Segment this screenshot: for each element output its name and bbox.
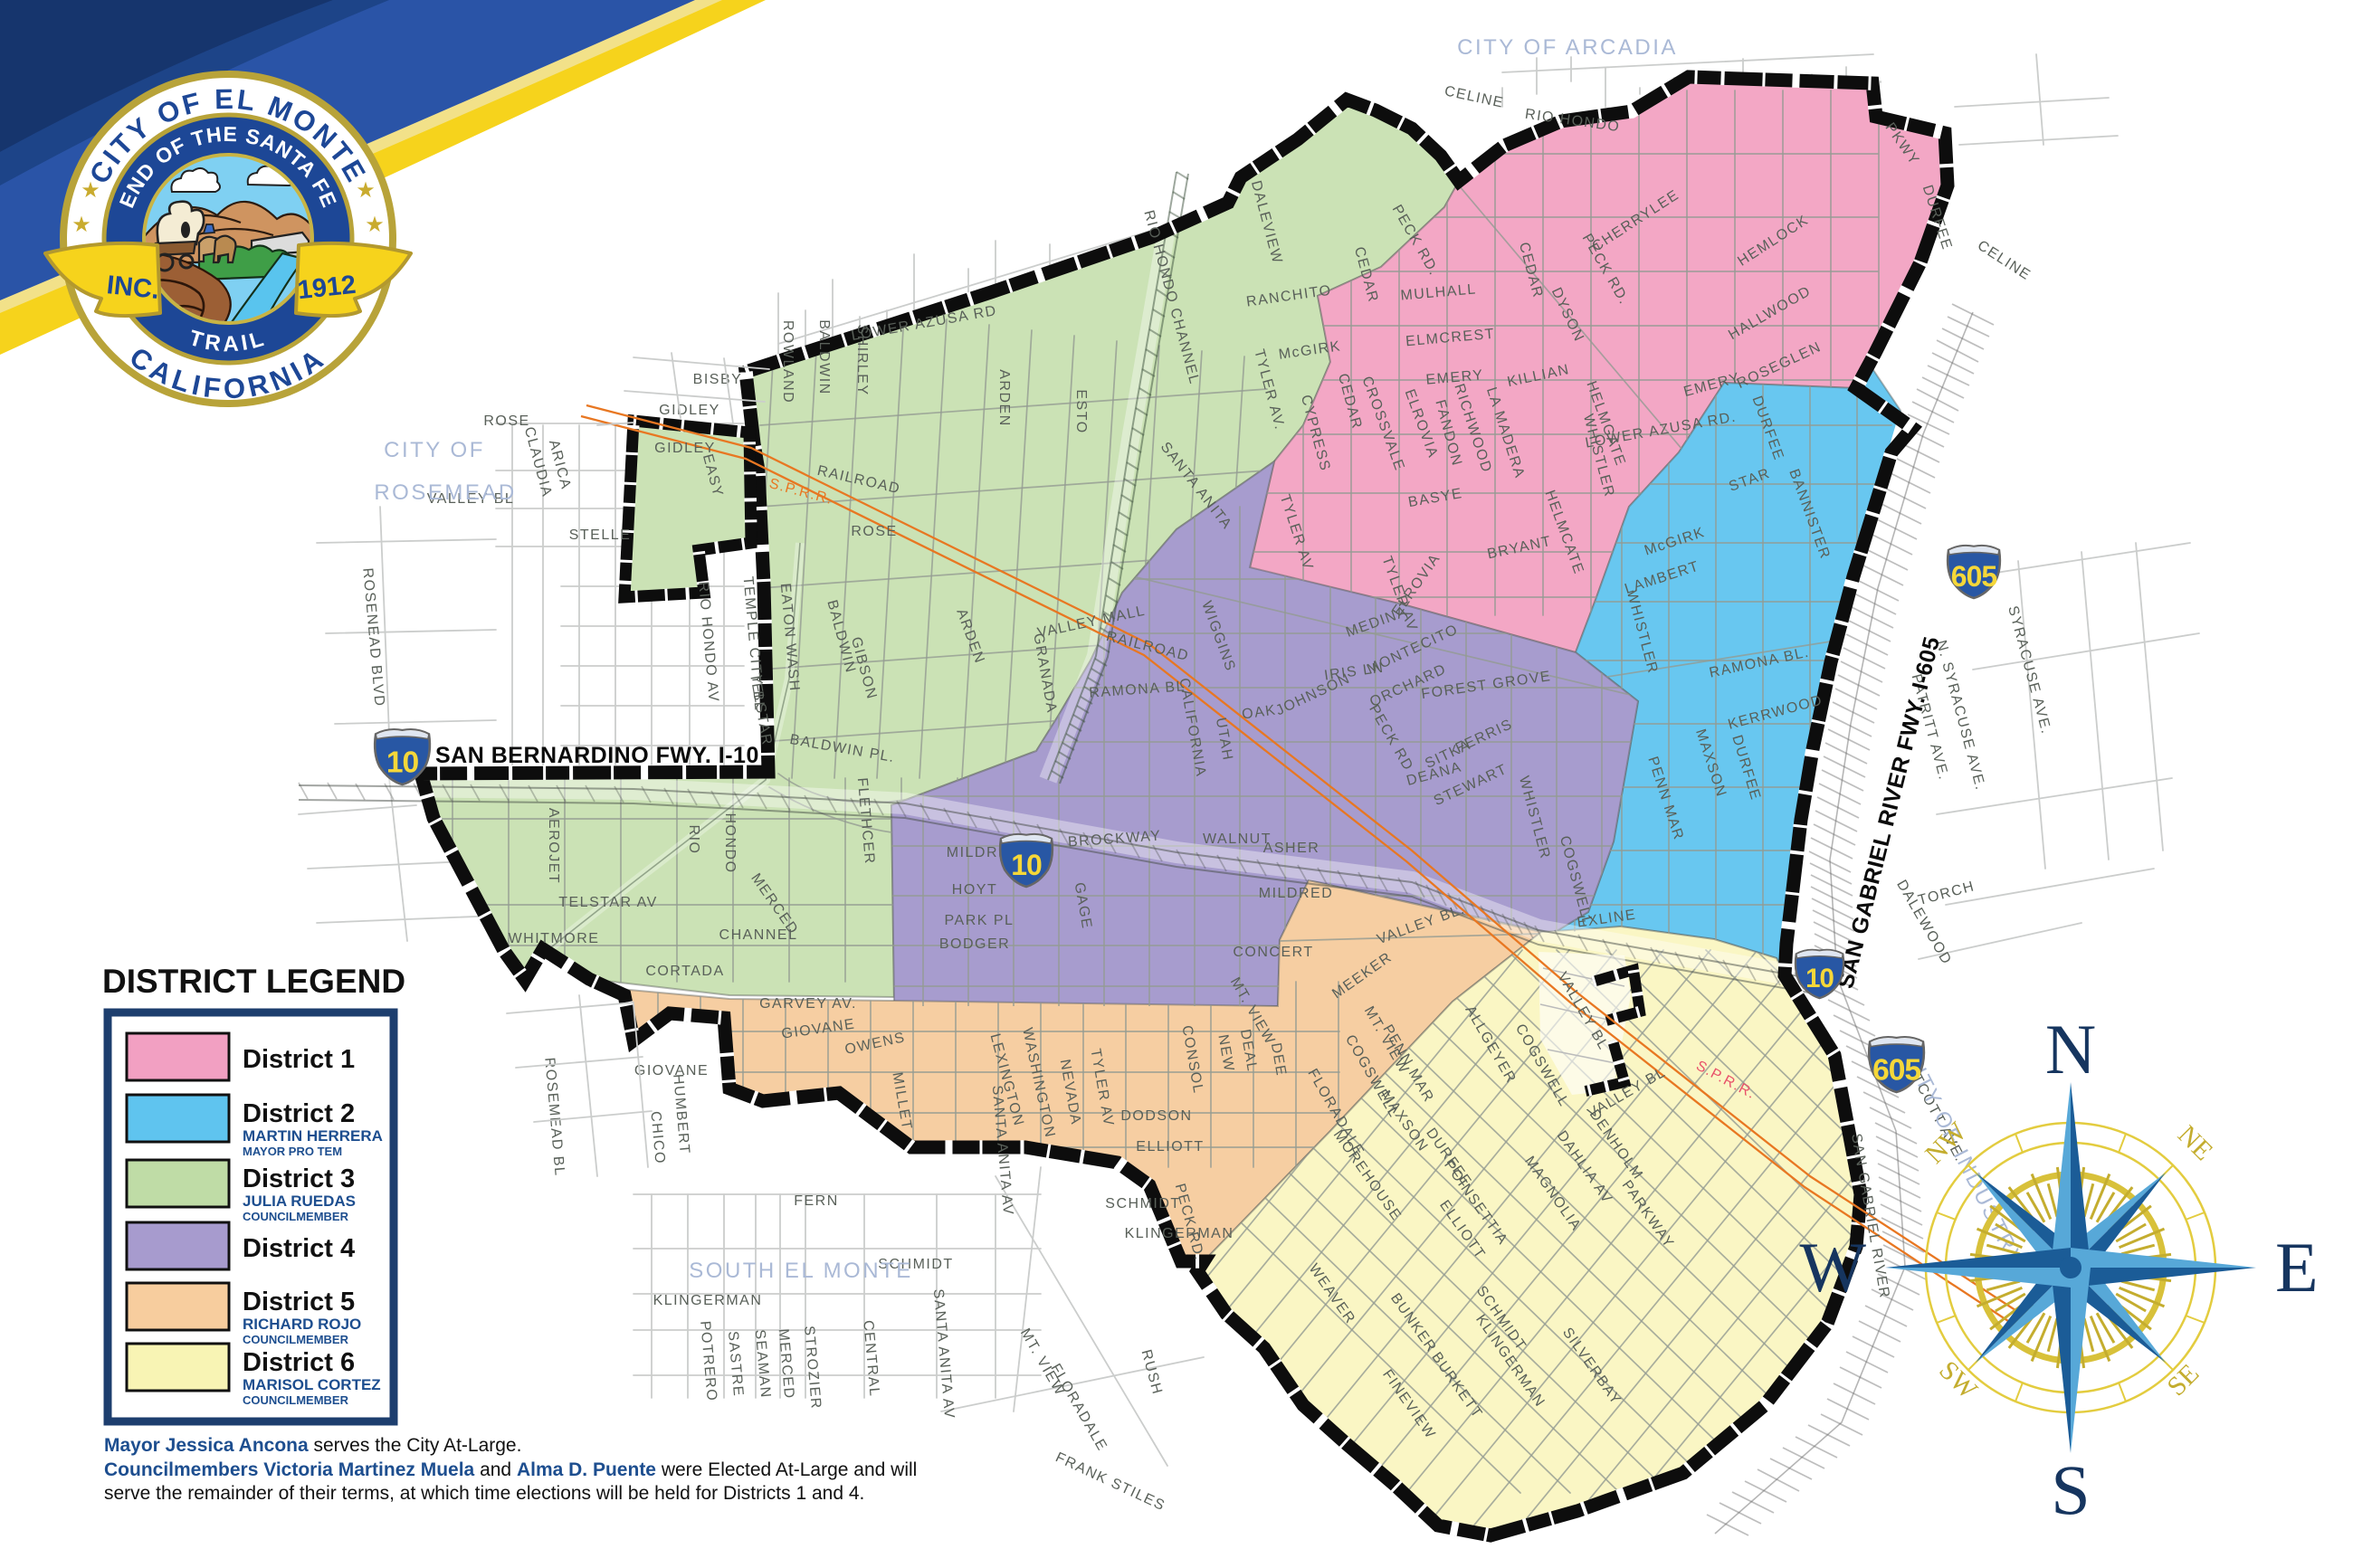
svg-text:ROWLAND: ROWLAND (780, 320, 795, 404)
svg-text:605: 605 (1872, 1053, 1920, 1087)
svg-text:COUNCILMEMBER: COUNCILMEMBER (243, 1210, 349, 1223)
svg-text:DODSON: DODSON (1120, 1108, 1192, 1124)
svg-text:ARDEN: ARDEN (996, 369, 1012, 427)
svg-text:E: E (2275, 1228, 2319, 1307)
svg-text:TELSTAR AV: TELSTAR AV (558, 895, 658, 910)
svg-text:RICHARD ROJO: RICHARD ROJO (243, 1316, 361, 1333)
svg-text:COUNCILMEMBER: COUNCILMEMBER (243, 1333, 349, 1346)
svg-text:10: 10 (1011, 849, 1042, 881)
svg-text:CHANNEL: CHANNEL (719, 927, 798, 943)
svg-text:PARK PL: PARK PL (945, 913, 1015, 928)
svg-text:District 5: District 5 (243, 1288, 355, 1316)
svg-text:MARISOL CORTEZ: MARISOL CORTEZ (243, 1376, 381, 1393)
svg-text:SOUTH EL MONTE: SOUTH EL MONTE (689, 1259, 912, 1283)
svg-text:CORTADA: CORTADA (645, 964, 724, 979)
svg-text:MARTIN HERRERA: MARTIN HERRERA (243, 1127, 383, 1145)
svg-text:KLINGERMAN: KLINGERMAN (653, 1293, 763, 1308)
svg-text:605: 605 (1951, 560, 1997, 593)
svg-text:★: ★ (81, 178, 100, 203)
svg-text:ASHER: ASHER (1263, 841, 1320, 856)
svg-text:District 2: District 2 (243, 1099, 355, 1128)
svg-text:N: N (2045, 1010, 2096, 1088)
svg-text:COUNCILMEMBER: COUNCILMEMBER (243, 1393, 349, 1407)
svg-text:INC.: INC. (105, 271, 160, 305)
svg-text:JULIA RUEDAS: JULIA RUEDAS (243, 1193, 356, 1210)
svg-text:DISTRICT LEGEND: DISTRICT LEGEND (102, 963, 405, 1000)
svg-text:★: ★ (365, 213, 385, 237)
svg-text:RIO: RIO (686, 825, 701, 855)
svg-text:ROSEMEAD: ROSEMEAD (374, 480, 516, 505)
svg-text:ESTO: ESTO (1073, 389, 1089, 433)
svg-text:FERN: FERN (794, 1193, 839, 1209)
svg-text:District 3: District 3 (243, 1164, 355, 1193)
svg-text:serve the remainder of their t: serve the remainder of their terms, at w… (104, 1483, 864, 1504)
svg-text:SHIRLEY: SHIRLEY (854, 325, 870, 396)
svg-text:ELLIOTT: ELLIOTT (1136, 1139, 1204, 1155)
svg-text:★: ★ (71, 213, 91, 237)
svg-text:STELLE: STELLE (569, 527, 632, 543)
svg-text:S: S (2051, 1450, 2090, 1529)
svg-text:SAN BERNARDINO FWY. I-10: SAN BERNARDINO FWY. I-10 (435, 743, 759, 768)
svg-text:CONCERT: CONCERT (1233, 945, 1313, 960)
svg-text:ROSE: ROSE (483, 413, 529, 429)
svg-text:Mayor Jessica Ancona serves th: Mayor Jessica Ancona serves the City At-… (104, 1435, 521, 1456)
svg-text:GARVEY AV.: GARVEY AV. (759, 996, 857, 1012)
svg-text:10: 10 (386, 746, 419, 779)
svg-text:1912: 1912 (296, 271, 357, 306)
svg-text:BODGER: BODGER (939, 936, 1010, 952)
svg-text:AEROJET: AEROJET (546, 808, 561, 884)
svg-text:SCHMIDT: SCHMIDT (1105, 1196, 1180, 1212)
svg-text:WHITMORE: WHITMORE (509, 931, 600, 946)
svg-text:W: W (1799, 1228, 1866, 1307)
svg-text:HONDO: HONDO (722, 813, 738, 873)
svg-text:District 4: District 4 (243, 1234, 355, 1263)
svg-text:BALDWIN: BALDWIN (816, 319, 832, 394)
svg-text:ROSE: ROSE (851, 524, 897, 539)
svg-text:CITY OF: CITY OF (384, 438, 485, 462)
svg-text:District 1: District 1 (243, 1045, 355, 1074)
svg-text:CITY OF ARCADIA: CITY OF ARCADIA (1457, 35, 1678, 60)
svg-text:Councilmembers Victoria Martin: Councilmembers Victoria Martinez Muela a… (104, 1459, 917, 1480)
svg-text:MILDRED: MILDRED (1259, 886, 1334, 901)
svg-text:10: 10 (1805, 964, 1834, 993)
svg-text:HOYT: HOYT (952, 882, 997, 898)
svg-text:KLINGERMAN: KLINGERMAN (1125, 1226, 1234, 1241)
svg-text:★: ★ (356, 178, 376, 203)
svg-text:District 6: District 6 (243, 1348, 355, 1377)
svg-text:MAYOR PRO TEM: MAYOR PRO TEM (243, 1145, 342, 1158)
svg-text:WALNUT: WALNUT (1203, 832, 1272, 847)
svg-text:GIDLEY: GIDLEY (659, 403, 720, 418)
svg-text:BISBY: BISBY (693, 372, 743, 387)
